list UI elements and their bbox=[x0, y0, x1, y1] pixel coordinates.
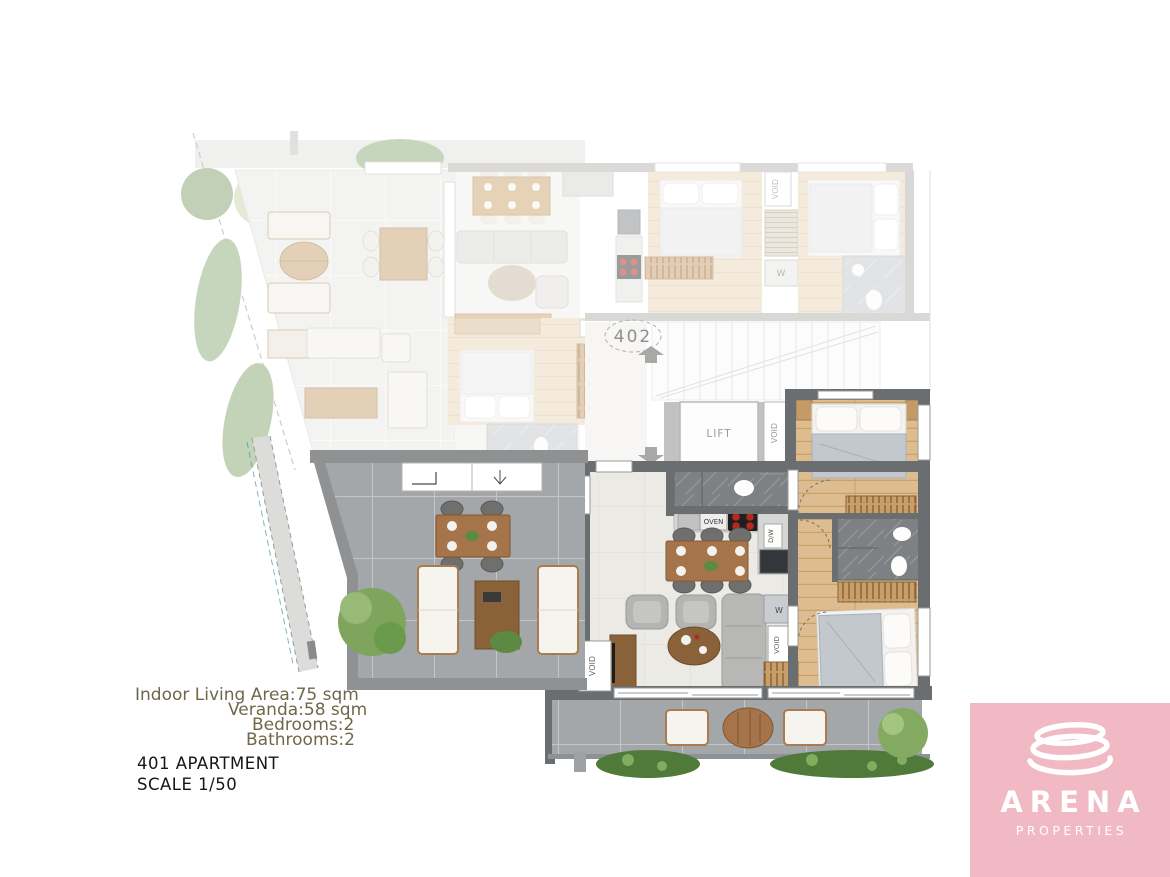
dishwasher-label-401: D/W bbox=[767, 529, 775, 543]
veranda-bottom-seating bbox=[666, 708, 826, 748]
floorplan-page: VOID W VOID bbox=[0, 0, 1170, 877]
arena-properties-logo: ARENA PROPERTIES bbox=[970, 703, 1170, 877]
logo-tagline-text: PROPERTIES bbox=[1016, 823, 1127, 838]
wardrobe-bedroom2 bbox=[838, 582, 916, 602]
washer-label-401: W bbox=[775, 606, 783, 615]
void-label-402-shaft: VOID bbox=[771, 179, 780, 199]
boundary-walkway bbox=[252, 436, 318, 672]
veranda-tree bbox=[338, 588, 406, 656]
bedroom-402-2 bbox=[808, 180, 900, 256]
oven-label-401: OVEN bbox=[704, 518, 724, 526]
void-label-core: VOID bbox=[770, 423, 779, 443]
veranda-401-bottom bbox=[548, 700, 934, 778]
dining-401 bbox=[666, 528, 751, 593]
arena-rings-icon bbox=[1008, 721, 1132, 783]
bathroom-401-1 bbox=[674, 470, 788, 512]
staircase bbox=[652, 322, 880, 400]
scale-text: SCALE 1/50 bbox=[137, 775, 237, 794]
void-label-401-left: VOID bbox=[588, 656, 597, 676]
bedroom-401-2 bbox=[817, 608, 918, 693]
apartment-402-label: 402 bbox=[614, 327, 652, 347]
bathroom-402 bbox=[843, 256, 909, 316]
logo-brand-text: ARENA bbox=[1000, 785, 1146, 819]
void-label-401-right: VOID bbox=[773, 636, 781, 654]
apartment-title: 401 APARTMENT bbox=[137, 754, 279, 773]
bathrooms-text: Bathrooms:2 bbox=[246, 732, 355, 748]
veranda-401-left bbox=[247, 436, 588, 690]
lift-label: LIFT bbox=[706, 428, 731, 440]
washer-label-402: W bbox=[777, 269, 786, 279]
